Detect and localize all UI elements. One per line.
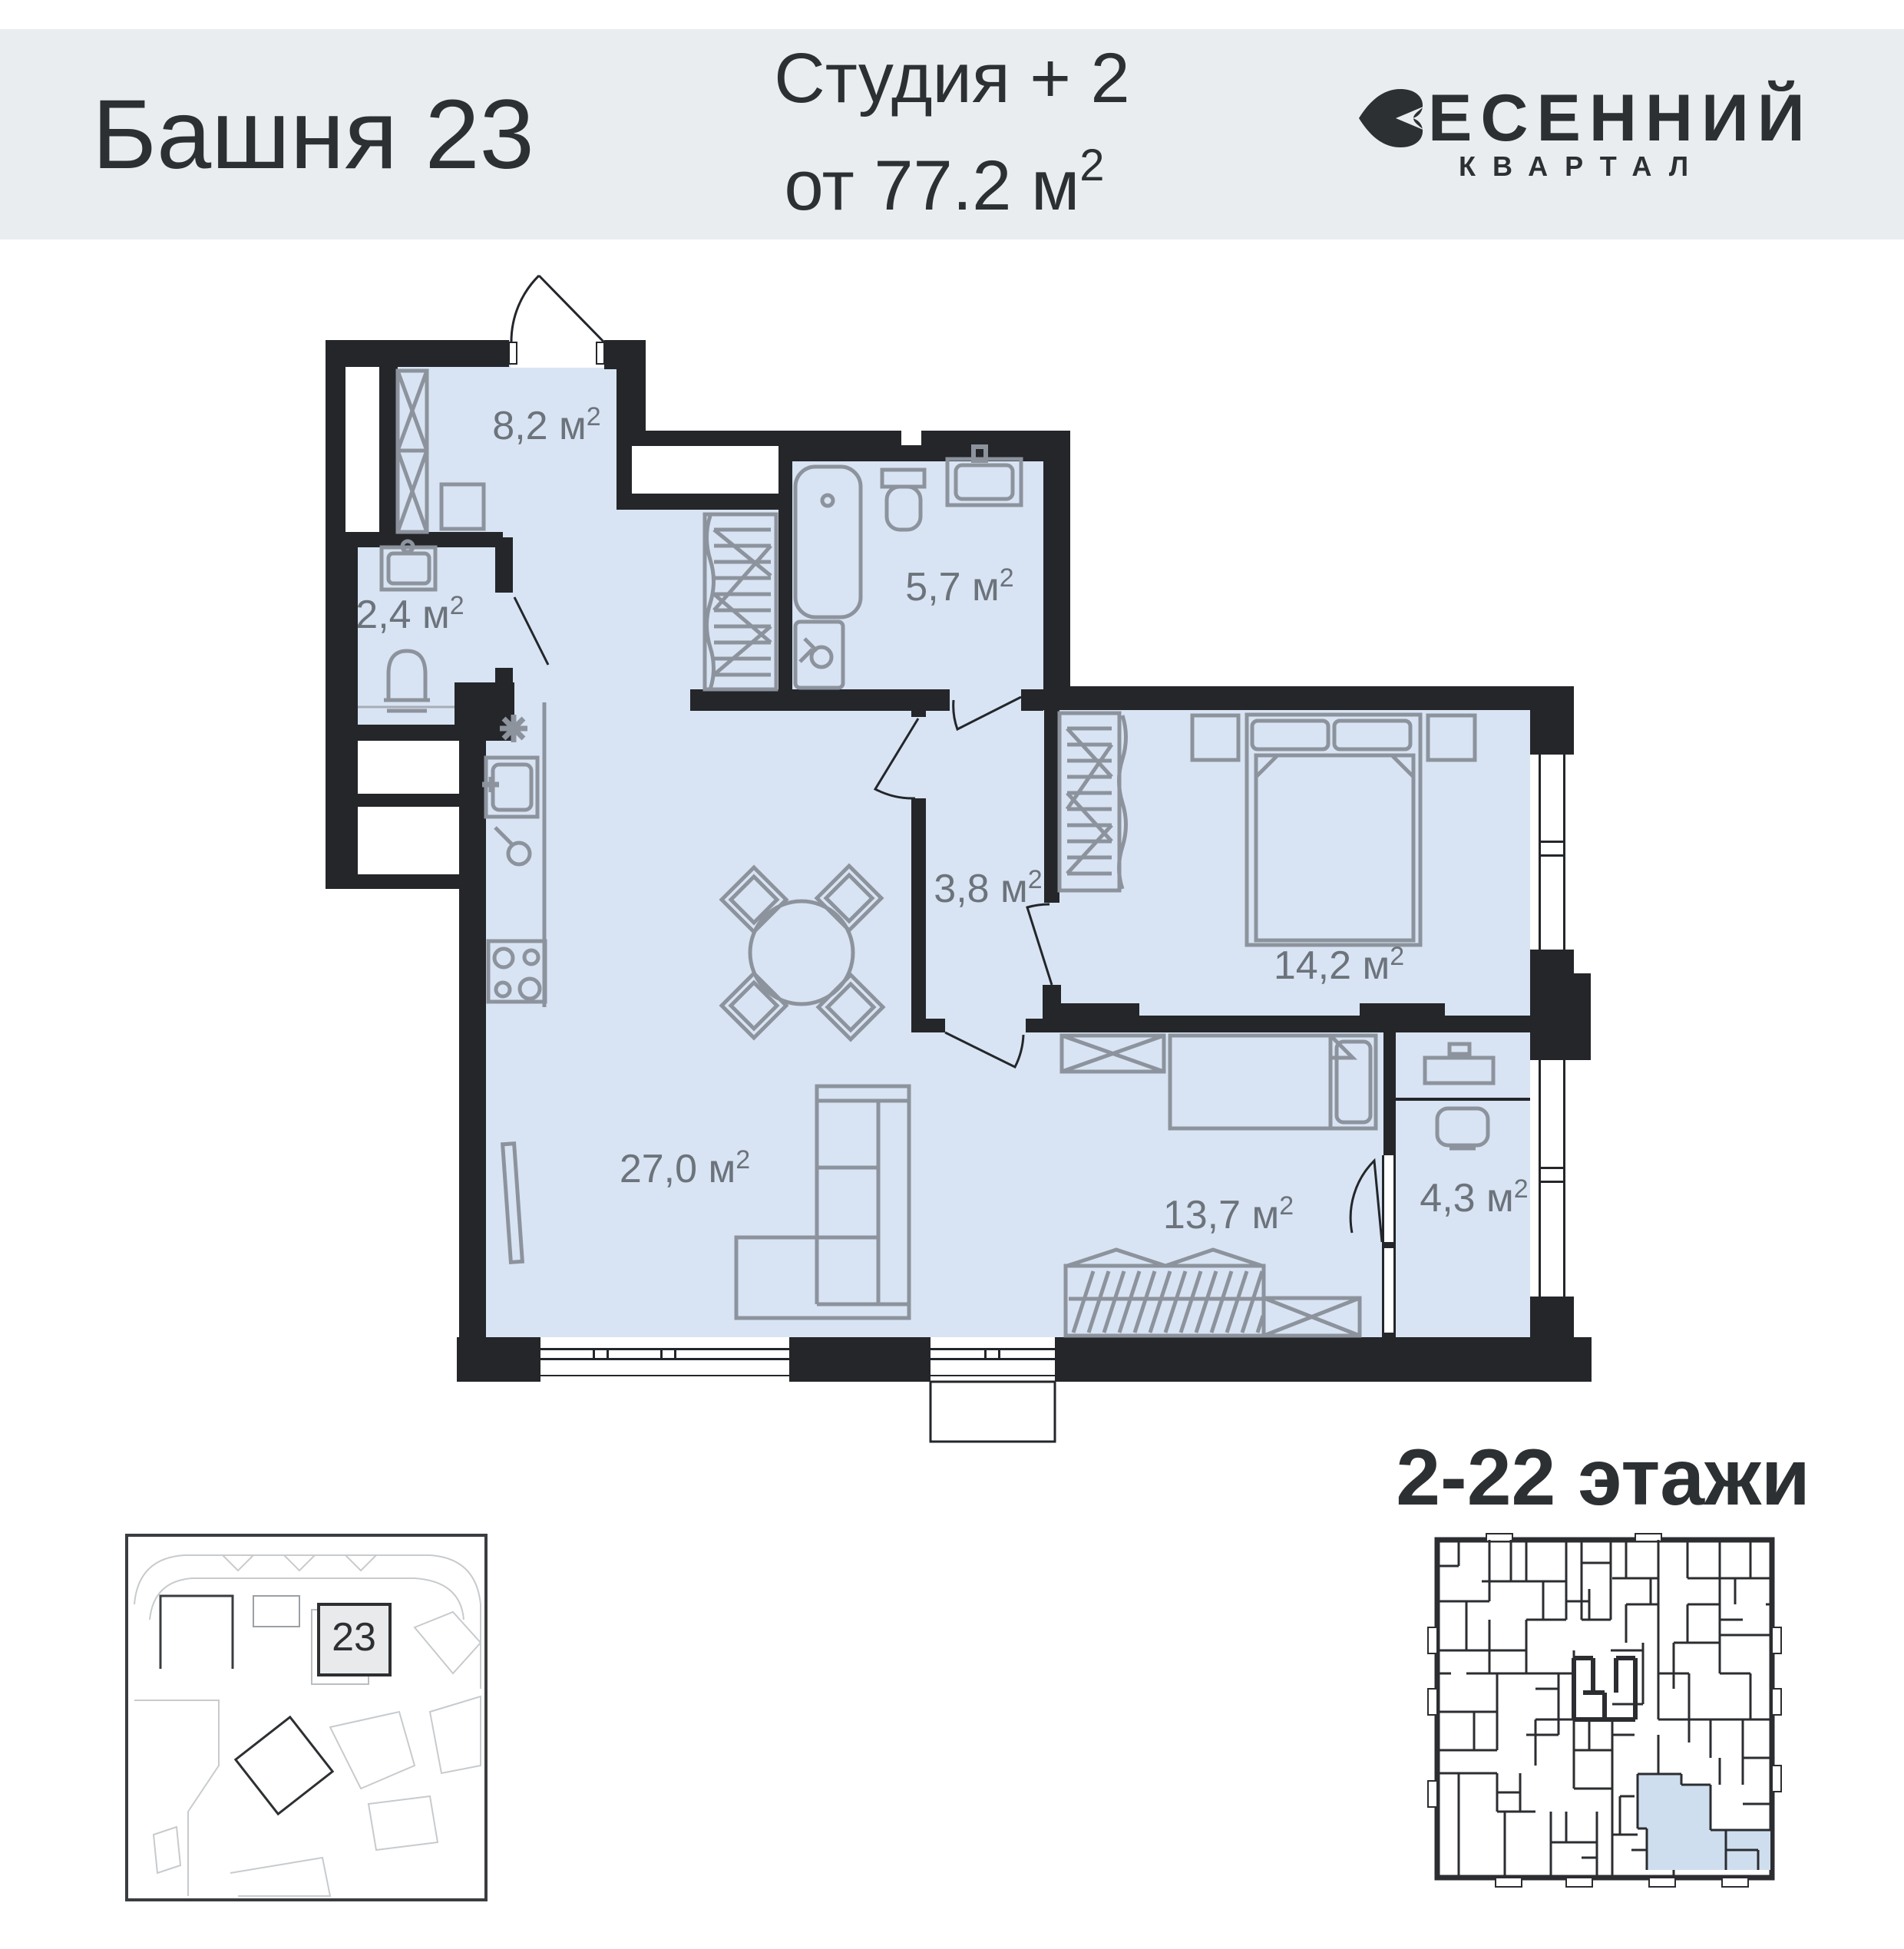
svg-text:2,4 м2: 2,4 м2 (355, 591, 464, 637)
svg-text:3,8 м2: 3,8 м2 (934, 865, 1042, 911)
svg-text:от 77.2 м2: от 77.2 м2 (785, 140, 1105, 225)
svg-text:13,7 м2: 13,7 м2 (1163, 1191, 1294, 1237)
svg-text:4,3 м2: 4,3 м2 (1420, 1174, 1528, 1221)
svg-text:23: 23 (332, 1615, 376, 1660)
svg-text:8,2 м2: 8,2 м2 (492, 402, 600, 448)
svg-text:ЕСЕННИЙ: ЕСЕННИЙ (1428, 81, 1813, 155)
svg-text:5,7 м2: 5,7 м2 (905, 563, 1013, 609)
svg-text:27,0 м2: 27,0 м2 (620, 1145, 750, 1191)
svg-text:КВАРТАЛ: КВАРТАЛ (1459, 150, 1705, 182)
svg-text:Студия + 2: Студия + 2 (774, 39, 1129, 117)
svg-text:14,2 м2: 14,2 м2 (1274, 942, 1404, 988)
svg-text:Башня 23: Башня 23 (92, 80, 534, 190)
svg-text:2-22 этажи: 2-22 этажи (1396, 1433, 1810, 1522)
